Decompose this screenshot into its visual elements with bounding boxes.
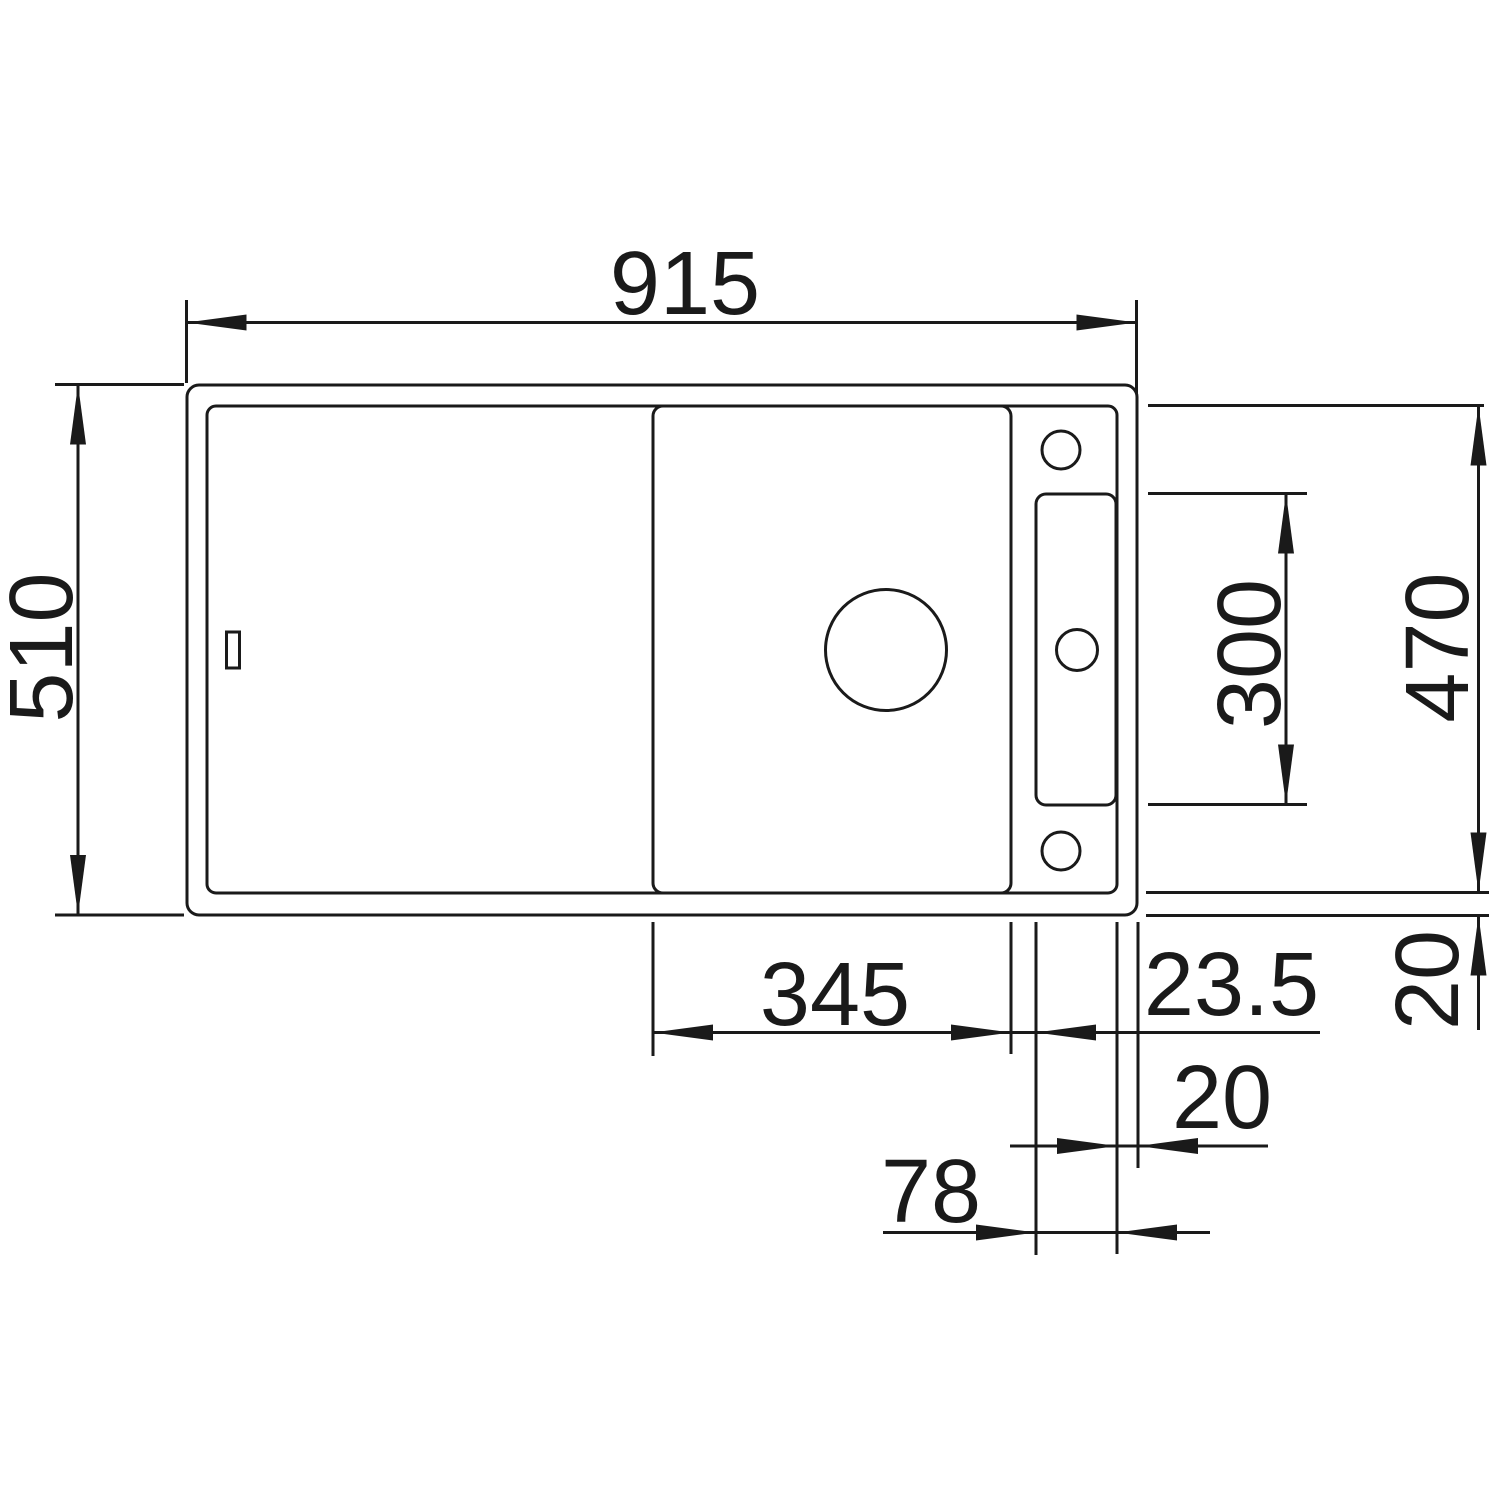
svg-text:300: 300	[1200, 579, 1300, 729]
svg-text:345: 345	[760, 945, 910, 1045]
svg-text:20: 20	[1172, 1048, 1272, 1148]
svg-text:20: 20	[1378, 930, 1478, 1030]
svg-text:470: 470	[1388, 572, 1488, 722]
svg-text:915: 915	[610, 234, 760, 334]
svg-text:510: 510	[0, 572, 92, 722]
svg-text:23.5: 23.5	[1144, 935, 1319, 1035]
svg-text:78: 78	[881, 1142, 981, 1242]
